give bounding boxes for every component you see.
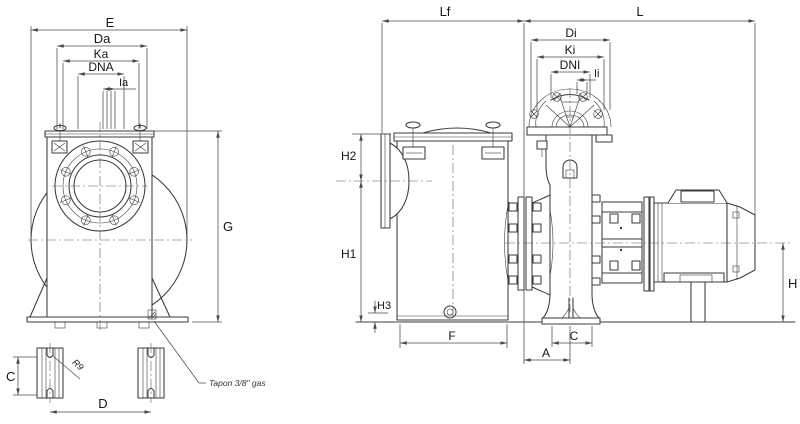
strainer-tank	[381, 122, 512, 320]
dim-label-l: L	[636, 4, 643, 19]
motor-support-leg	[691, 282, 705, 322]
dim-label-g: G	[223, 219, 233, 234]
dim-label-ii: Ii	[594, 68, 600, 80]
fan-cover	[727, 203, 755, 282]
radius-label-r9: R9	[70, 357, 85, 372]
dim-label-dna: DNA	[88, 60, 113, 74]
dim-label-ka: Ka	[94, 47, 109, 61]
suction-flange-connection	[505, 195, 554, 295]
side-view-pump-unit	[336, 88, 795, 324]
dim-label-di: Di	[565, 26, 576, 40]
dim-label-c-left: C	[6, 369, 15, 384]
dim-label-h1: H1	[341, 247, 357, 261]
dim-label-da: Da	[94, 31, 111, 46]
dim-label-lf: Lf	[440, 4, 451, 19]
motor	[654, 190, 755, 322]
dim-label-ki: Ki	[565, 43, 576, 57]
pump-dimension-drawing-page: E Da Ka DNA Ia G C D R9 Tapon 3/8" gas L…	[0, 0, 800, 424]
dim-label-h: H	[788, 276, 797, 291]
dim-label-f: F	[448, 329, 455, 343]
dim-label-d: D	[98, 396, 107, 411]
foot-pads-detail	[37, 343, 164, 403]
dim-label-h2: H2	[341, 149, 357, 163]
pump-dimension-drawing: E Da Ka DNA Ia G C D R9 Tapon 3/8" gas L…	[0, 0, 800, 424]
foot-pad-left	[37, 343, 63, 403]
foot-pad-right	[138, 343, 164, 403]
dim-label-ia: Ia	[119, 77, 129, 89]
front-view-pump	[27, 122, 192, 332]
dim-label-c-right: C	[570, 329, 579, 343]
dim-label-a: A	[542, 346, 550, 360]
drain-plug-note: Tapon 3/8" gas	[209, 378, 266, 388]
flange-bolts	[509, 203, 541, 284]
dim-label-e: E	[106, 15, 115, 30]
dim-label-h3: H3	[377, 300, 391, 312]
dim-label-dni: DNI	[560, 58, 581, 72]
